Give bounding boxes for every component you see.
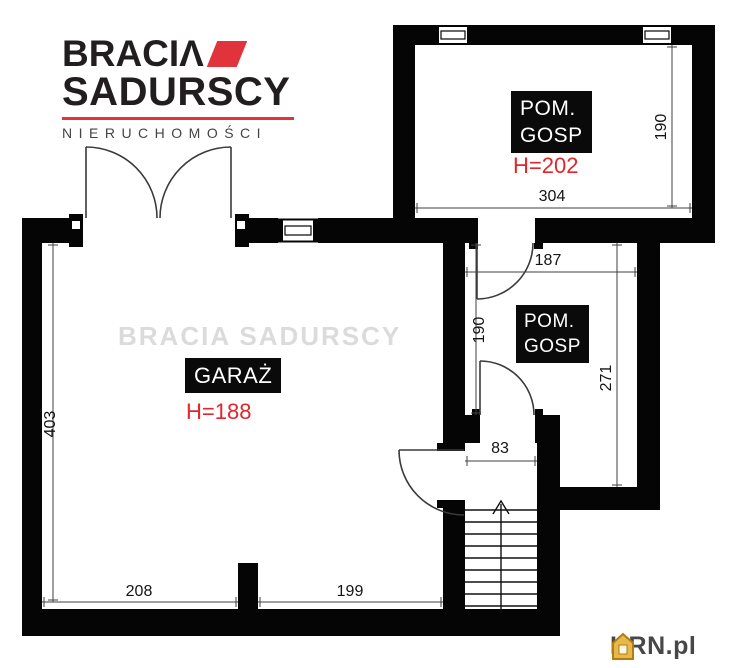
- floor-plan-page: BRACIA SADURSCY BRACIΛ SADURSCY NIERUCHO…: [0, 0, 740, 668]
- brand-tagline: NIERUCHOMOŚCI: [62, 125, 294, 141]
- door-jamb: [235, 214, 249, 218]
- brand-name-top: BRACIΛ: [62, 36, 204, 72]
- wall-segment: [443, 507, 465, 609]
- wall-pier: [238, 563, 258, 609]
- room-label-utility-middle: POM. GOSP: [516, 305, 589, 363]
- wall-segment: [22, 218, 42, 636]
- room-label-utility-middle-line2: GOSP: [524, 334, 581, 359]
- stairs: [465, 501, 537, 613]
- wall-segment: [637, 243, 660, 510]
- utility-middle-door-swing: [480, 361, 534, 415]
- dim-label-utility-top-width: 304: [530, 188, 574, 206]
- door-jamb: [235, 243, 249, 247]
- wall-segment: [535, 218, 715, 243]
- door-jamb: [534, 243, 543, 249]
- wall-segment: [393, 25, 415, 218]
- brand-name-bottom: SADURSCY: [62, 72, 294, 112]
- watermark: BRACIA SADURSCY: [118, 321, 401, 352]
- dim-label-garage-width-left: 208: [117, 583, 161, 601]
- wall-segment: [443, 243, 465, 447]
- window-garage: [276, 220, 320, 242]
- jamb-inset: [237, 221, 245, 229]
- house-icon: [610, 632, 636, 662]
- krn-logo: KRN.pl: [610, 632, 696, 661]
- utility-top-ceiling-height: H=202: [513, 153, 578, 179]
- door-jamb: [535, 409, 543, 415]
- room-label-utility-top: POM. GOSP: [511, 91, 592, 153]
- wall-segment: [535, 415, 560, 443]
- dim-label-garage-depth: 403: [42, 402, 60, 446]
- garage-double-door-right-swing: [160, 147, 231, 218]
- room-label-utility-middle-line1: POM.: [524, 309, 581, 334]
- door-jamb: [69, 243, 83, 247]
- garage-ceiling-height: H=188: [186, 399, 251, 425]
- dim-label-utility-top-depth: 190: [653, 105, 671, 149]
- wall-segment: [465, 415, 480, 443]
- dim-label-utility-middle-depth-right: 271: [598, 356, 616, 400]
- brand-logo: BRACIΛ SADURSCY NIERUCHOMOŚCI: [62, 36, 294, 141]
- wall-segment: [692, 25, 715, 243]
- jamb-insets: [72, 221, 245, 229]
- wall-segment: [473, 25, 637, 45]
- window-utility-top-left: [433, 26, 473, 44]
- dim-label-utility-middle-width: 187: [526, 252, 570, 270]
- room-label-utility-top-line1: POM.: [520, 95, 583, 122]
- window-utility-top-right: [637, 26, 677, 44]
- dim-label-garage-width-right: 199: [328, 583, 372, 601]
- dim-label-utility-middle-depth-left: 190: [471, 308, 489, 352]
- wall-segment: [537, 443, 560, 636]
- door-jamb: [69, 214, 83, 218]
- garage-double-door-left-swing: [86, 147, 157, 218]
- room-label-garage: GARAŻ: [185, 358, 281, 393]
- windows-layer: [276, 26, 677, 242]
- utility-top-door-swing: [477, 243, 533, 299]
- dim-label-hall-width: 83: [478, 440, 522, 458]
- wall-segment: [22, 609, 560, 636]
- room-label-utility-top-line2: GOSP: [520, 122, 583, 149]
- jamb-inset: [72, 221, 80, 229]
- door-jamb: [437, 500, 465, 508]
- brand-accent-shape-icon: [207, 41, 248, 67]
- wall-segment: [318, 218, 478, 243]
- brand-rule: [62, 117, 294, 120]
